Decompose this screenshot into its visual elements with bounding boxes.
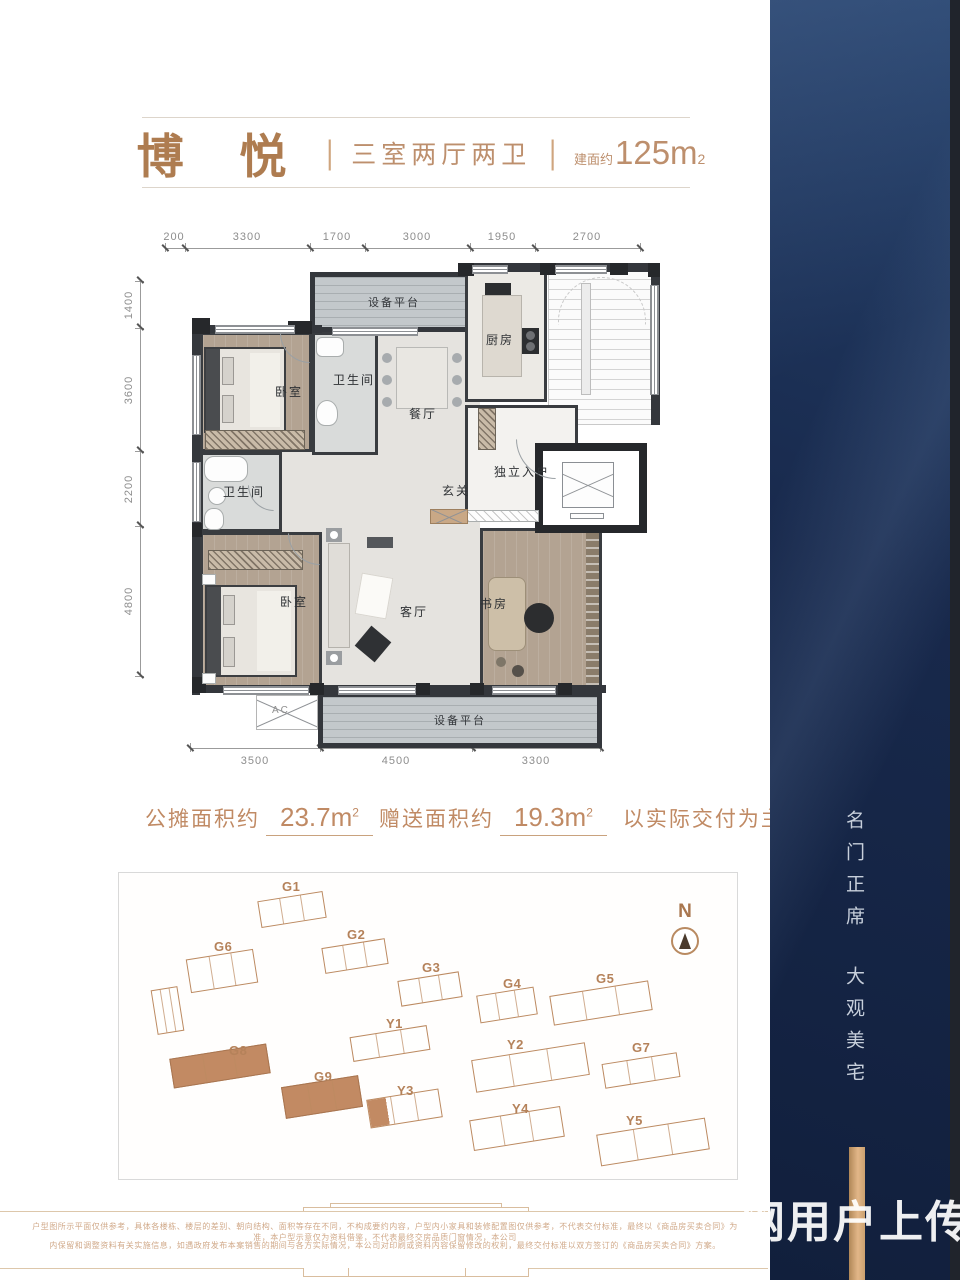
dim-line-left (140, 281, 141, 676)
site-building-g8 (169, 1044, 270, 1089)
side-table (326, 528, 342, 542)
north-label: N (665, 901, 705, 923)
window (472, 265, 508, 274)
site-building-y2 (471, 1042, 590, 1093)
header: 博 悦 | 三室两厅两卫 | 建面约 125m 2 (142, 118, 690, 187)
dim-left-3600: 3600 (123, 376, 135, 404)
window (192, 355, 201, 435)
dim-left-4800: 4800 (123, 587, 135, 615)
site-building-g3 (397, 971, 462, 1006)
nightstand (202, 574, 216, 585)
site-building-label-y5: Y5 (626, 1113, 643, 1128)
site-building-g2 (321, 938, 388, 974)
site-building-g4 (476, 987, 538, 1024)
bookshelf (586, 533, 599, 685)
site-building-label-g7: G7 (632, 1040, 650, 1055)
wardrobe (208, 550, 303, 570)
dim-top-1700: 1700 (323, 231, 351, 243)
site-building (151, 986, 185, 1035)
room-label-kitchen: 厨房 (486, 331, 514, 348)
site-building-g1 (257, 891, 326, 928)
entry-cabinet (478, 408, 496, 450)
window (223, 686, 309, 695)
dim-top-3000: 3000 (403, 231, 431, 243)
room-label-bedroom-top: 卧室 (275, 383, 303, 400)
area-sup: 2 (698, 151, 706, 167)
dim-top-1950: 1950 (488, 231, 516, 243)
area-info: 公摊面积约 23.7m2 赠送面积约 19.3m2 以实际交付为主 (145, 802, 685, 836)
header-divider: | (549, 132, 556, 172)
decor (496, 657, 506, 667)
window (650, 285, 659, 395)
sofa (328, 543, 350, 648)
decor (512, 665, 524, 677)
room-label-study: 书房 (480, 595, 508, 612)
window (332, 327, 418, 336)
header-divider: | (326, 132, 333, 172)
floor-plan: 200 3300 1700 3000 1950 2700 1400 3600 2… (120, 225, 700, 790)
fridge (485, 283, 511, 295)
room-label-entry: 独立入户 (494, 463, 550, 480)
room-label-living: 客厅 (400, 603, 428, 620)
header-bottom-rule (142, 187, 690, 188)
stove (522, 328, 539, 354)
site-building-label-y1: Y1 (386, 1016, 403, 1031)
dim-left-2200: 2200 (123, 475, 135, 503)
room-label-equip-top: 设备平台 (368, 294, 420, 310)
window (555, 265, 607, 274)
site-building-label-y2: Y2 (507, 1037, 524, 1052)
dim-line-bottom (190, 748, 600, 749)
apartment-layout: 三室两厅两卫 (351, 135, 531, 171)
window (192, 462, 201, 522)
dim-bottom-3500: 3500 (241, 755, 269, 767)
side-table (326, 651, 342, 665)
apartment-area: 建面约 125m 2 (574, 134, 705, 172)
area-prefix: 建面约 (574, 149, 613, 168)
shoe-cabinet (467, 510, 539, 522)
site-building-g6 (186, 949, 258, 993)
site-building-label-g6: G6 (214, 939, 232, 954)
site-building-label-y4: Y4 (512, 1101, 529, 1116)
delivery-note: 以实际交付为主 (623, 803, 784, 833)
sink (316, 337, 344, 357)
dim-line-top (165, 248, 640, 249)
dim-left-1400: 1400 (123, 291, 135, 319)
wardrobe (205, 430, 305, 450)
room-equip-bottom: 设备平台 (318, 692, 602, 748)
dining-table (396, 347, 448, 409)
door-mat (430, 509, 468, 524)
site-building-g5 (549, 980, 652, 1025)
toilet (204, 508, 224, 530)
site-building-g7 (602, 1052, 681, 1089)
site-plan-buildings: G1G2G3G4G5G6G7G8G9Y1Y2Y3Y4Y5 (119, 873, 737, 1179)
site-building-label-g4: G4 (503, 976, 521, 991)
site-plan: G1G2G3G4G5G6G7G8G9Y1Y2Y3Y4Y5 N (118, 872, 738, 1180)
dim-bottom-3300: 3300 (522, 755, 550, 767)
ac-label: AC (272, 705, 290, 716)
bed (204, 347, 286, 433)
desk (488, 577, 526, 651)
site-building-label-g1: G1 (282, 879, 300, 894)
site-building-label-g3: G3 (422, 960, 440, 975)
room-equip-top: 设备平台 (310, 272, 478, 332)
site-building-label-g8: G8 (229, 1043, 247, 1058)
gift-area-label: 赠送面积约 (379, 803, 494, 833)
watermark: 网用户上传 (741, 1186, 960, 1250)
window (338, 686, 416, 695)
fold-mark (348, 1268, 466, 1277)
dim-top-200: 200 (163, 231, 184, 243)
tv-console (367, 537, 393, 548)
room-label-foyer: 玄关 (442, 482, 470, 499)
share-area-value: 23.7m2 (266, 802, 373, 836)
dim-top-2700: 2700 (573, 231, 601, 243)
stair-rail (581, 283, 591, 395)
area-value: 125m (615, 134, 698, 172)
toilet (316, 400, 338, 426)
dim-bottom-4500: 4500 (382, 755, 410, 767)
share-area-label: 公摊面积约 (145, 803, 260, 833)
slogan-bottom: 大观美宅 (840, 966, 867, 1094)
site-building-y5 (596, 1118, 710, 1167)
room-label-bedroom-bottom: 卧室 (280, 593, 308, 610)
gift-area-value: 19.3m2 (500, 802, 607, 836)
window (492, 686, 556, 695)
compass-icon (671, 927, 699, 955)
compass: N (665, 901, 705, 973)
nightstand (202, 673, 216, 684)
bathtub (204, 456, 248, 482)
disclaimer-line-2: 内保留和调整资料有关实施信息，如遇政府发布本案销售的期间与各方实际情况，本公司对… (30, 1240, 740, 1251)
fold-line (0, 1211, 768, 1212)
apartment-name: 博 悦 (127, 118, 309, 187)
flyer-page: 博 悦 | 三室两厅两卫 | 建面约 125m 2 200 3300 1700 … (0, 0, 960, 1280)
dim-top-3300: 3300 (233, 231, 261, 243)
side-panel-edge (950, 0, 960, 1280)
site-building-label-g5: G5 (596, 971, 614, 986)
room-label-bath-left: 卫生间 (223, 483, 265, 500)
slogan-top: 名门正席 (840, 810, 867, 938)
site-building-label-g9: G9 (314, 1069, 332, 1084)
room-label-equip-bottom: 设备平台 (434, 712, 486, 728)
desk-chair (524, 603, 554, 633)
site-building-label-g2: G2 (347, 927, 365, 942)
room-label-bath-top: 卫生间 (333, 371, 375, 388)
site-building-label-y3: Y3 (397, 1083, 414, 1098)
room-label-dining: 餐厅 (409, 405, 437, 422)
